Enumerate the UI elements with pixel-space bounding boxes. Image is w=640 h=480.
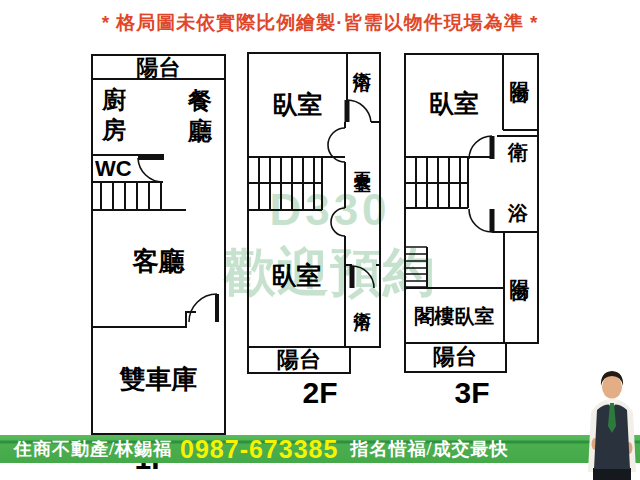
room-label-1f-garage: 雙車庫 <box>92 365 225 394</box>
room-label-3f-balcony-bottom: 陽台 <box>405 345 505 369</box>
room-label-3f-bath-lower-char: 浴 <box>505 202 531 224</box>
room-label-2f-bath-top: 衛浴 <box>351 57 371 61</box>
room-label-3f-bedroom: 臥室 <box>405 90 503 118</box>
contact-banner: 住商不動產/林錫福 0987-673385 指名惜福/成交最快 <box>0 435 640 463</box>
floor-label-3f: 3F <box>442 376 502 409</box>
phone-number: 0987-673385 <box>180 435 338 464</box>
room-label-1f-living: 客廳 <box>92 247 225 276</box>
agency-name: 住商不動產/林錫福 <box>14 437 172 461</box>
room-label-2f-bedroom-bottom: 臥室 <box>248 262 345 290</box>
slogan-text: 指名惜福/成交最快 <box>350 437 508 461</box>
room-label-3f-balcony-top: 陽台 <box>509 66 531 70</box>
room-label-3f-bath-upper-char: 衛 <box>505 141 531 163</box>
room-label-1f-balcony: 陽台 <box>92 56 225 80</box>
floorplan-image: D330 歡迎預約 <box>0 0 640 480</box>
room-label-2f-bath-bottom: 衛浴 <box>352 298 371 302</box>
room-label-2f-balcony: 陽台 <box>248 348 350 372</box>
room-label-1f-kitchen: 廚房 <box>99 85 129 145</box>
room-label-1f-dining: 餐廳 <box>185 86 215 146</box>
room-label-2f-closet: 更衣室 <box>352 158 371 164</box>
floor-label-2f: 2F <box>290 376 350 409</box>
room-label-1f-wc: WC <box>95 157 132 181</box>
room-label-2f-bedroom-top: 臥室 <box>248 91 347 119</box>
room-label-3f-balcony-right: 陽台 <box>509 264 531 268</box>
agent-photo <box>583 366 640 480</box>
room-label-3f-attic-bedroom: 閣樓臥室 <box>405 305 504 327</box>
